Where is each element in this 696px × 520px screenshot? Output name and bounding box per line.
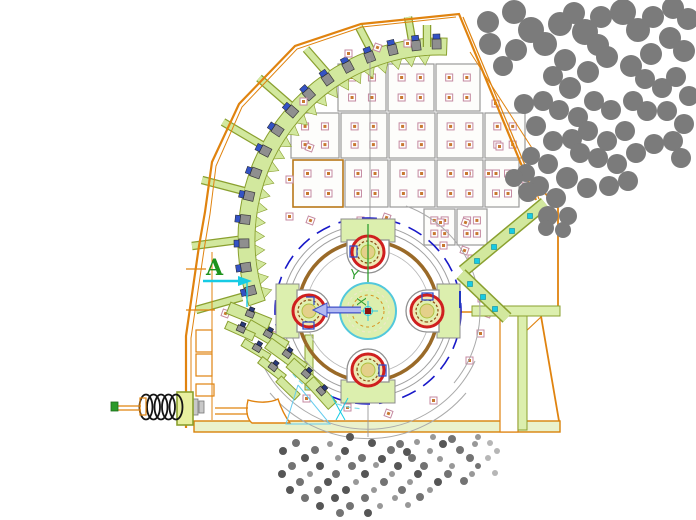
product-particle [346,502,354,510]
bolt-square-core [466,232,469,235]
bolt-square [398,74,405,81]
bolt-square [463,94,470,101]
feed-rock [543,131,563,151]
bolt-square [496,143,503,150]
feed-rock [526,116,546,136]
feed-rock [479,33,501,55]
feed-rock [555,222,571,238]
bolt-square [446,94,453,101]
bolt-square-core [420,192,423,195]
feed-rock [505,169,523,187]
bolt-square-core [406,42,409,45]
bolt-square [384,409,393,418]
product-particle [387,446,395,454]
bolt-square-core [347,52,350,55]
product-particle [396,440,404,448]
product-particle [307,471,313,477]
apron-bolt-cyan [528,214,533,219]
bolt-square [398,94,405,101]
shaft-center-mark [365,308,371,314]
bolt-square-core [402,192,405,195]
bolt-square-core [304,125,307,128]
product-particle [456,446,464,454]
bolt-square [399,123,406,130]
rib-fill [306,49,327,73]
feed-rock [671,148,691,168]
liner-tooth [255,216,265,227]
bolt-square-core [323,125,326,128]
feed-rock [642,6,664,28]
feed-rock [615,121,635,141]
bolt-square [417,94,424,101]
bolt-square [321,141,328,148]
bolt-square-core [449,125,452,128]
liner-tooth [255,245,265,256]
bolt-square-core [351,96,354,99]
product-particle [378,455,386,463]
apron-bolt-cyan [481,295,486,300]
bolt-square [494,123,501,130]
feed-rock [596,46,618,68]
rib-fill [259,78,290,105]
product-particle [296,478,304,486]
bolt-square [325,170,332,177]
feed-rock [666,67,686,87]
feed-rock [533,91,553,111]
bolt-square [446,74,453,81]
bolt-square-core [419,96,422,99]
bolt-square-core [372,143,375,146]
bolt-square [466,123,473,130]
liner-bolt [410,35,421,51]
product-particle [332,470,340,478]
product-particle [448,435,456,443]
feed-rock [570,143,590,163]
product-particle [301,494,309,502]
bolt-square-core [494,192,497,195]
bolt-square-core [353,143,356,146]
bolt-square-core [401,125,404,128]
feed-rock [538,154,558,174]
bolt-square-core [494,172,497,175]
bolt-square-core [468,125,471,128]
product-particle [407,479,413,485]
product-particle [348,462,356,470]
bolt-square-core [419,76,422,79]
feed-rock [522,147,540,165]
bolt-square [286,176,293,183]
feed-rock [577,61,599,83]
product-particle [368,439,376,447]
bolt-square [492,170,499,177]
bolt-square-core [439,221,442,224]
bolt-square [370,123,377,130]
feed-rock [514,94,534,114]
bolt-square-core [448,76,451,79]
product-particle [286,486,294,494]
feed-rock [674,114,694,134]
feed-rock [546,188,566,208]
product-particle [361,470,369,478]
bolt-square [505,190,512,197]
bolt-square [306,216,315,225]
bolt-square [418,170,425,177]
bolt-square [345,50,352,57]
bolt-square [368,94,375,101]
bolt-square [325,190,332,197]
product-particle [487,440,493,446]
bolt-square-core [498,145,501,148]
apron-bolt-cyan [493,307,498,312]
feed-rock [640,43,662,65]
liner-plate [389,113,435,158]
liner-bolt [235,262,251,273]
bolt-square [464,230,471,237]
liner-plate [457,209,487,245]
product-particle [327,441,333,447]
bolt-square [399,141,406,148]
adjuster-boot [247,399,290,423]
bolt-square [431,230,438,237]
product-particle [341,447,349,455]
bolt-square [300,98,307,105]
bolt-square-core [475,232,478,235]
liner-bolt [235,214,251,225]
feed-rock [618,171,638,191]
liner-plate [388,64,434,111]
bolt-square [463,74,470,81]
left-apron-plate-rect [276,376,300,400]
bolt-square [349,94,356,101]
liner-tooth [256,259,266,270]
bolt-square-core [449,192,452,195]
bolt-square-core [432,399,435,402]
product-particle [301,454,309,462]
product-particle [460,477,468,485]
feed-rock [493,56,513,76]
bolt-square [418,190,425,197]
liner-bolt-body [432,39,441,49]
feed-rock [590,6,612,28]
bolt-square-core [449,172,452,175]
apron-bolt-cyan [468,282,473,287]
feed-rock [673,40,695,62]
bolt-square-core [511,125,514,128]
left-apron-plate [276,376,300,400]
feed-rock [578,121,598,141]
right-frame-column [518,316,527,430]
bolt-square-core [327,192,330,195]
bolt-square-core [420,125,423,128]
bolt-square-core [302,100,305,103]
bolt-square-core [475,219,478,222]
feed-rock [599,176,619,196]
feed-rock [597,131,617,151]
product-particle [278,470,286,478]
hammer-assembly [406,284,460,338]
wall-bracket-lower [196,354,212,376]
bolt-square-core [449,143,452,146]
bolt-square [466,190,473,197]
bolt-square-core [479,332,482,335]
bolt-square-core [323,143,326,146]
right-frame-panel [500,312,518,432]
bolt-square-core [402,172,405,175]
bolt-square-core [327,172,330,175]
bolt-square-core [448,96,451,99]
impact-crusher-section-drawing: A Y X [0,0,696,520]
bolt-square [370,141,377,148]
bolt-square [351,141,358,148]
bolt-square-core [443,232,446,235]
feed-rock [663,131,683,151]
bolt-square [447,170,454,177]
bolt-square [466,141,473,148]
liner-bolt [432,34,441,49]
bolt-square [473,230,480,237]
liner-bolt-cap [234,240,239,247]
bolt-square-core [442,244,445,247]
bolt-square [430,397,437,404]
product-particle [353,479,359,485]
liner-bolt-body [411,40,421,51]
apron-bolt-cyan [492,245,497,250]
bolt-square [441,230,448,237]
feed-rock [607,154,627,174]
product-particle [472,441,478,447]
liner-bolt [234,239,249,248]
bolt-square-core [400,96,403,99]
bolt-square-core [401,143,404,146]
feed-rock [543,66,563,86]
product-particle [439,440,447,448]
product-particle [279,447,287,455]
feed-rock [601,100,621,120]
bolt-square [354,170,361,177]
product-particle [324,478,332,486]
coil-loop [147,395,160,420]
rod-end-tip [111,402,118,411]
product-particle [466,454,474,462]
liner-plate [341,113,387,158]
product-particle [469,471,475,477]
feed-rock [556,167,578,189]
bolt-square [286,213,293,220]
product-particle [380,478,388,486]
product-particle [475,463,481,469]
bolt-square-core [496,125,499,128]
product-particle [398,486,406,494]
product-particle [335,455,341,461]
feed-rock [644,134,664,154]
product-particle [292,439,300,447]
liner-bolt-cap [236,265,242,273]
bolt-square-core [433,232,436,235]
bolt-square [418,141,425,148]
hammer-assembly [341,349,395,403]
product-particle [434,478,442,486]
feed-rock [559,77,581,99]
bolt-square-core [306,172,309,175]
product-particle [316,502,324,510]
feed-rock [679,86,696,106]
bolt-square-core [288,215,291,218]
bolt-square [418,123,425,130]
coil-loop [155,395,168,420]
product-particle [336,509,344,517]
product-particle [492,470,498,476]
bolt-square-core [468,192,471,195]
bolt-square [485,170,492,177]
product-particle [311,446,319,454]
right-frame-hbar [472,306,560,316]
product-particle [449,463,455,469]
bolt-square [417,74,424,81]
liner-bolt-cap [235,215,241,222]
bolt-square [304,190,311,197]
wall-bracket-upper [196,330,212,352]
bolt-square-core [420,143,423,146]
product-particle [364,509,372,517]
coil-loop [162,395,175,420]
product-particle [437,456,443,462]
liner-plate [436,64,480,111]
product-particle [371,487,377,493]
y-axis-label: Y [348,265,361,282]
product-particle [427,487,433,493]
bolt-square [400,170,407,177]
bolt-square [447,123,454,130]
product-particle [377,503,383,509]
product-particle [430,434,436,440]
bolt-square-core [374,172,377,175]
liner-plate [424,209,455,245]
product-particle [342,486,350,494]
product-particle [475,434,481,440]
casing-right-lower-wall [541,316,559,421]
bolt-square [404,40,411,47]
bolt-square-core [353,125,356,128]
liner-bolt-cap [411,35,419,41]
bolt-square [473,217,480,224]
bolt-square [400,190,407,197]
apron-bolt-cyan [475,259,480,264]
bolt-square [447,141,454,148]
bolt-square-core [465,96,468,99]
product-particle [414,439,420,445]
product-particle [392,495,398,501]
product-particle [405,502,411,508]
liner-plate [437,160,483,207]
feed-rock [518,182,538,202]
bolt-square [372,190,379,197]
bolt-square-core [356,172,359,175]
feed-rock [588,148,608,168]
feed-rock [635,69,655,89]
bolt-square [447,190,454,197]
bolt-square-core [465,76,468,79]
feed-rock [538,220,554,236]
spring-adjuster [111,330,290,425]
product-particle [331,494,339,502]
feed-rock [577,178,597,198]
spring-nut-inner [199,401,204,413]
cad-canvas: A Y X [0,0,696,520]
bolt-square-core [370,96,373,99]
datum-label: A [205,255,224,281]
crushed-product-particles [278,433,500,517]
bolt-square [492,190,499,197]
x-axis-label: X [354,297,369,306]
product-particle [494,448,500,454]
bolt-square-core [400,76,403,79]
product-particle [420,462,428,470]
feed-rock [657,101,677,121]
bolt-square-core [420,172,423,175]
liner-bolt-body [240,215,251,225]
bolt-square-core [356,192,359,195]
bolt-square-core [372,125,375,128]
bolt-square [372,170,379,177]
product-particle [394,462,402,470]
product-particle [389,471,395,477]
bolt-square [437,219,444,226]
bolt-square-core [288,178,291,181]
product-particle [361,494,369,502]
liner-plate-highlighted [293,160,343,207]
product-particle [408,454,416,462]
product-particle [288,462,296,470]
bolt-square [351,123,358,130]
bolt-square [304,170,311,177]
wall-bracket-small [196,384,214,396]
product-particle [416,493,424,501]
liner-plate [390,160,435,207]
bolt-square [463,170,470,177]
bolt-square-core [487,172,490,175]
feed-rock [584,91,604,111]
bolt-square [354,190,361,197]
feed-rock [533,32,557,56]
bolt-square [321,123,328,130]
liner-tooth [255,231,265,242]
product-particle [346,433,354,441]
product-particle [414,470,422,478]
product-particle [485,455,491,461]
feed-rock [477,11,499,33]
apron-bolt-cyan [510,229,515,234]
product-particle [373,462,379,468]
product-particle [316,462,324,470]
liner-bolt-body [240,262,251,272]
liner-bolt-body [239,239,249,248]
bolt-square-core [468,143,471,146]
feed-rock [637,101,657,121]
liner-bolt-cap [433,34,440,39]
bolt-square-core [306,192,309,195]
liner-plate [437,113,483,158]
feed-rock [626,143,646,163]
bolt-square-core [465,172,468,175]
liner-tooth [257,202,267,213]
product-particle [444,470,452,478]
bolt-square-core [507,192,510,195]
bolt-square [440,242,447,249]
product-particle [427,448,433,454]
liner-plate [345,160,388,207]
bolt-square-core [374,192,377,195]
bolt-square-core [305,397,308,400]
